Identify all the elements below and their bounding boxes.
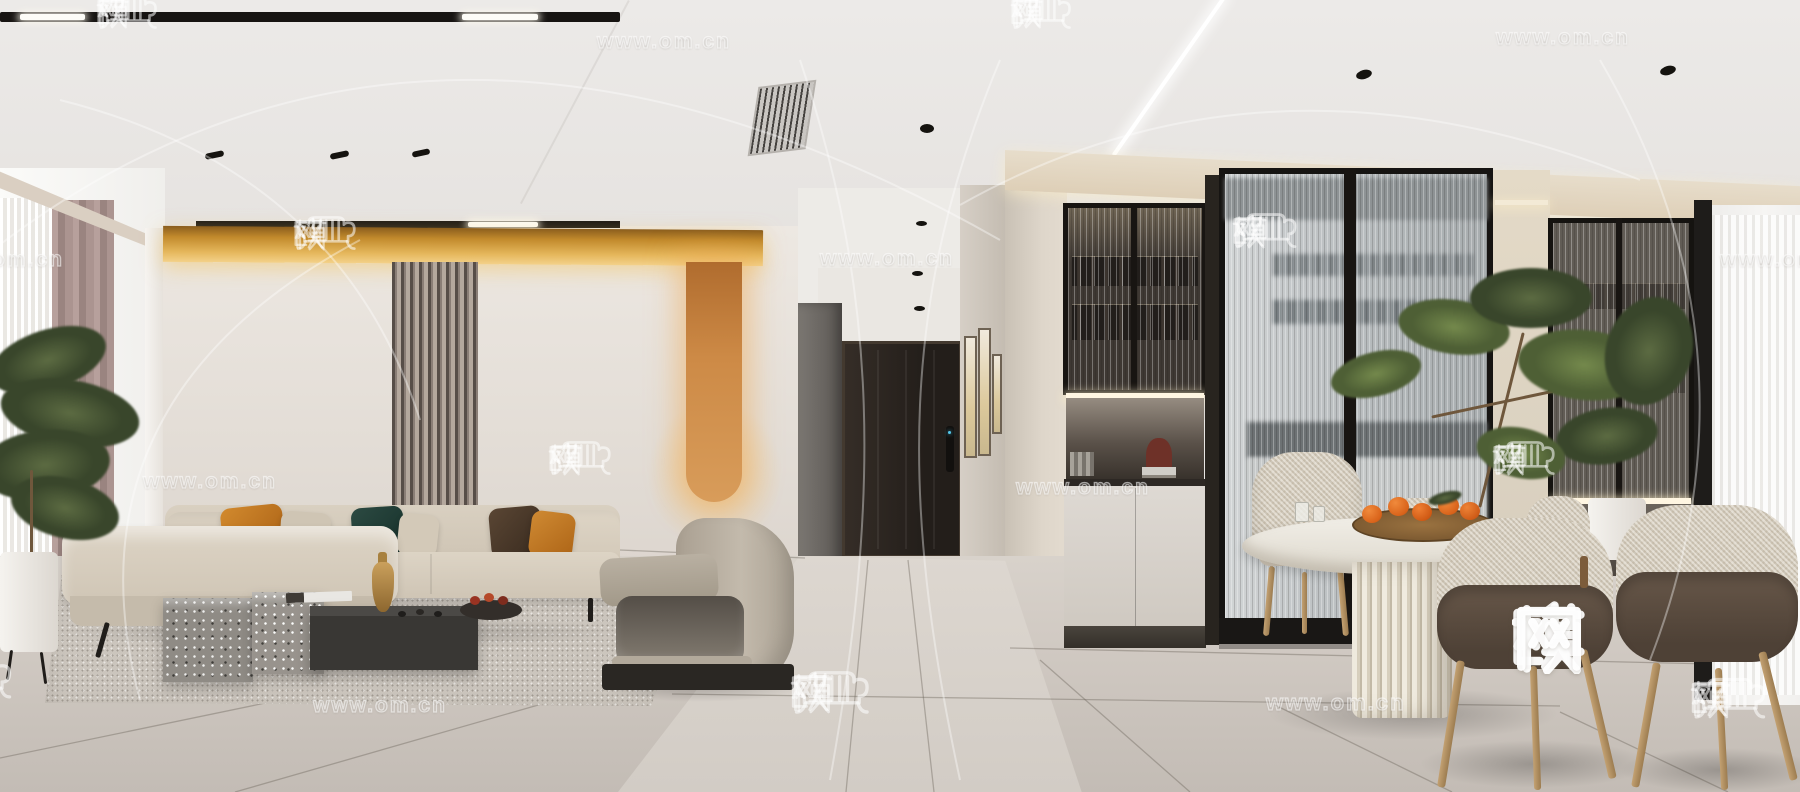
watermark-url: www.om.cn — [597, 30, 731, 54]
watermark-url: www.om.cn — [820, 247, 954, 271]
watermark-url: www.om.cn — [313, 694, 447, 718]
watermark-url: www.om.cn — [1720, 248, 1800, 272]
interior-render-scene: www.om.cnwww.om.cnwww.om.cnwww.om.cnwww.… — [0, 0, 1800, 792]
watermark-url: www.om.cn — [0, 248, 64, 272]
watermark-url: www.om.cn — [1016, 476, 1150, 500]
watermark-url: www.om.cn — [1266, 690, 1405, 716]
watermark-url: www.om.cn — [143, 470, 277, 494]
watermark-url: www.om.cn — [1496, 26, 1630, 50]
